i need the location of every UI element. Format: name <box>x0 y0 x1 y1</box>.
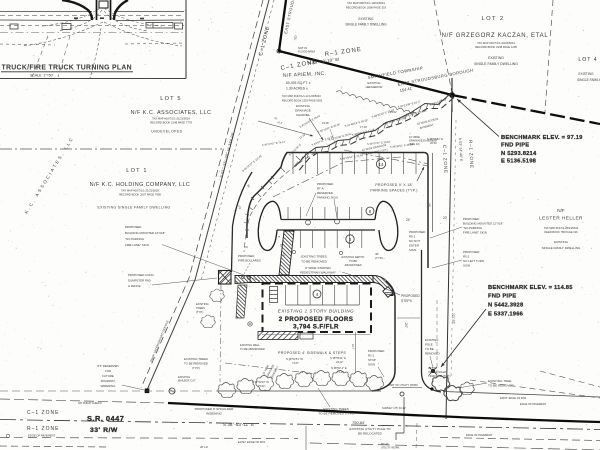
svg-text:154.41': 154.41' <box>399 86 413 93</box>
svg-text:TRUCK/FIRE TRUCK TURNING PLAN: TRUCK/FIRE TRUCK TURNING PLAN <box>2 65 132 72</box>
svg-text:LOT 5: LOT 5 <box>160 96 181 102</box>
svg-text:R–1 ZONE: R–1 ZONE <box>27 426 59 432</box>
svg-text:TAX MAP #16/7/1/1-20/24/5041: TAX MAP #16/7/1/1-20/24/5041 <box>477 41 515 45</box>
svg-text:FUTURE: FUTURE <box>102 374 114 378</box>
svg-text:EXISTING: EXISTING <box>196 302 209 306</box>
svg-text:TAX MAP #06/7/1/1-10/01/5041: TAX MAP #06/7/1/1-10/01/5041 <box>347 1 385 5</box>
svg-text:N 5293.8214: N 5293.8214 <box>501 151 537 157</box>
svg-text:EXISTING: EXISTING <box>554 240 569 244</box>
svg-text:MAILBOX CUT: MAILBOX CUT <box>178 379 196 383</box>
svg-text:C–1 ZONE: C–1 ZONE <box>442 145 449 174</box>
svg-text:CHANNEL: CHANNEL <box>296 113 311 117</box>
svg-text:DO NOT: DO NOT <box>409 239 420 243</box>
svg-text:TO BE: TO BE <box>349 259 357 263</box>
svg-text:41.2': 41.2' <box>277 120 284 125</box>
svg-text:REMOVED: REMOVED <box>425 352 440 356</box>
svg-text:C–1 ZONE: C–1 ZONE <box>27 410 59 416</box>
svg-text:TO BE REMOVED: TO BE REMOVED <box>184 362 208 366</box>
svg-text:HEDGEROW: HEDGEROW <box>366 85 383 89</box>
svg-text:PARKING SPACES (TYP.): PARKING SPACES (TYP.) <box>370 189 417 193</box>
svg-text:R5-2: R5-2 <box>463 255 470 259</box>
svg-text:BENCHMARK ELEV. = 114.85: BENCHMARK ELEV. = 114.85 <box>488 285 573 291</box>
svg-text:TO BE REMOVED (TYP.): TO BE REMOVED (TYP.) <box>318 412 353 416</box>
svg-text:BE RELOCATED: BE RELOCATED <box>358 432 382 436</box>
svg-text:1.30 ACRES ±: 1.30 ACRES ± <box>286 87 308 91</box>
svg-text:S 53°14'46" E: S 53°14'46" E <box>429 98 446 107</box>
svg-text:DUMPSTER PAD: DUMPSTER PAD <box>128 279 151 283</box>
svg-text:DEED BOOK 765 PAGE 316: DEED BOOK 765 PAGE 316 <box>544 230 578 234</box>
svg-text:RT-A: RT-A <box>317 187 324 191</box>
svg-text:20': 20' <box>443 216 448 220</box>
svg-text:S 38°-53'-11" E: S 38°-53'-11" E <box>223 422 254 427</box>
svg-text:DRAINAGE: DRAINAGE <box>295 109 311 113</box>
svg-text:ABANDONED: ABANDONED <box>343 263 361 267</box>
svg-text:TREES: TREES <box>196 306 205 310</box>
svg-text:PROP. UNDERGROUND SERVICE: PROP. UNDERGROUND SERVICE <box>149 319 169 362</box>
svg-text:EXISTING WELL: EXISTING WELL <box>240 343 260 347</box>
svg-text:EXISTING: EXISTING <box>296 104 311 108</box>
svg-text:MT 49: MT 49 <box>381 442 389 446</box>
svg-text:UNDEVELOPED: UNDEVELOPED <box>151 130 182 134</box>
svg-text:N/F APIEM, INC.: N/F APIEM, INC. <box>283 71 327 79</box>
svg-text:25': 25' <box>427 203 431 208</box>
svg-text:LOT 1: LOT 1 <box>126 168 147 174</box>
svg-text:PROPOSED: PROPOSED <box>401 294 420 298</box>
svg-text:STEPS: STEPS <box>401 299 413 303</box>
svg-text:SIGN: SIGN <box>368 363 375 367</box>
svg-text:SD.: SD. <box>293 34 298 40</box>
svg-text:(TYP.): (TYP.) <box>196 310 204 314</box>
svg-text:SIGN: SIGN <box>463 264 470 268</box>
svg-text:ROADWAY: ROADWAY <box>101 379 116 383</box>
svg-text:LIMIT OF UTILITY WORK: LIMIT OF UTILITY WORK <box>388 383 418 387</box>
svg-text:R–1 ZONE: R–1 ZONE <box>468 140 475 169</box>
svg-text:N/F PHILIP CHIEKO: N/F PHILIP CHIEKO <box>78 401 102 405</box>
svg-text:EDGE OF PAVEMENT: EDGE OF PAVEMENT <box>466 433 493 437</box>
svg-text:EXISTING TREES: EXISTING TREES <box>323 407 349 411</box>
svg-text:C–1 ZONE: C–1 ZONE <box>258 26 271 57</box>
svg-text:16.7': 16.7' <box>351 344 355 350</box>
svg-text:(TYP.): (TYP.) <box>375 256 383 260</box>
svg-text:UTILITY WORK: UTILITY WORK <box>381 446 400 450</box>
svg-text:23.12': 23.12' <box>336 360 343 364</box>
svg-text:SIGN: SIGN <box>409 248 416 252</box>
svg-text:SCALE: 1"=50': SCALE: 1"=50' <box>30 74 54 78</box>
svg-text:23.46': 23.46' <box>322 121 329 125</box>
svg-text:EXISTING TREE: EXISTING TREE <box>488 379 512 383</box>
svg-text:4: 4 <box>316 292 319 297</box>
svg-text:8' WIDE STRIPED: 8' WIDE STRIPED <box>305 266 331 270</box>
svg-text:E 5136.5198: E 5136.5198 <box>501 159 537 165</box>
svg-text:S 40°11'26" E: S 40°11'26" E <box>288 143 302 157</box>
svg-text:10' WIDE: 10' WIDE <box>409 135 420 139</box>
svg-text:EDGE OF PAVEMENT: EDGE OF PAVEMENT <box>28 434 56 438</box>
svg-text:TAX MAP #16/7/1-25/24/5341: TAX MAP #16/7/1-25/24/5341 <box>544 226 579 230</box>
svg-text:SURVEY 175' 94.19': SURVEY 175' 94.19' <box>382 406 406 410</box>
svg-text:S 38°53'11" E: S 38°53'11" E <box>330 356 346 360</box>
svg-text:FND PIPE: FND PIPE <box>501 143 529 149</box>
svg-text:BUILDING MOUNTED 12"X18": BUILDING MOUNTED 12"X18" <box>125 231 165 235</box>
svg-text:BUILDING MOUNTED 12"X18": BUILDING MOUNTED 12"X18" <box>463 222 503 226</box>
svg-text:PROPOSED: PROPOSED <box>238 254 254 258</box>
svg-text:DRAINAGE EASEMENT: DRAINAGE EASEMENT <box>409 139 438 143</box>
svg-text:TO BE ABANDONED: TO BE ABANDONED <box>240 347 265 351</box>
svg-text:PROPOSED: PROPOSED <box>368 349 384 353</box>
svg-text:RECORD BOOK 2302 PAGE 9292: RECORD BOOK 2302 PAGE 9292 <box>282 99 323 103</box>
svg-text:TAX MAP #16/7/1/1-21/21/5024: TAX MAP #16/7/1/1-21/21/5024 <box>152 117 190 121</box>
svg-text:SINGLE FAMILY DWELLING: SINGLE FAMILY DWELLING <box>345 23 387 27</box>
svg-text:N/F GRZEGORZ KACZAN, ETAL: N/F GRZEGORZ KACZAN, ETAL <box>442 33 549 39</box>
svg-text:N 38°53'-1" E: N 38°53'-1" E <box>331 366 347 370</box>
svg-text:FIRE LANE" SIGN: FIRE LANE" SIGN <box>463 231 487 235</box>
svg-text:70': 70' <box>274 116 279 121</box>
svg-text:N 37°52'07" W: N 37°52'07" W <box>252 380 269 384</box>
svg-text:3: 3 <box>349 237 352 242</box>
svg-text:RECORD BOOK 2148 PAGE 7779: RECORD BOOK 2148 PAGE 7779 <box>150 121 192 125</box>
svg-text:S 38°56'51" E 36.54': S 38°56'51" E 36.54' <box>390 142 415 149</box>
svg-text:8: 8 <box>369 209 372 214</box>
svg-text:RECORD BOOK 2067 PAGE 7999: RECORD BOOK 2067 PAGE 7999 <box>119 193 161 197</box>
svg-text:N/F: N/F <box>557 208 565 213</box>
svg-text:EXISTING: EXISTING <box>178 375 190 379</box>
svg-text:74.67': 74.67' <box>292 361 299 365</box>
svg-text:PROPOSED: PROPOSED <box>409 230 425 234</box>
svg-text:24': 24' <box>406 218 411 222</box>
svg-text:PROPOSED: PROPOSED <box>463 250 479 254</box>
svg-text:LOT 4: LOT 4 <box>578 57 597 63</box>
svg-text:EXISTING TREES: EXISTING TREES <box>301 255 327 259</box>
svg-text:S.R. 0447: S.R. 0447 <box>87 414 124 423</box>
svg-text:FND PIPE: FND PIPE <box>488 294 516 300</box>
svg-text:N 53°-14'-46" E: N 53°-14'-46" E <box>458 138 463 162</box>
svg-text:PROPOSED 8' SHOULDER: PROPOSED 8' SHOULDER <box>195 407 235 411</box>
svg-text:EXISTING UTILITY POLE TO: EXISTING UTILITY POLE TO <box>350 427 392 431</box>
svg-text:WIDENING: WIDENING <box>206 412 222 416</box>
svg-text:40' LD: 40' LD <box>200 445 208 449</box>
svg-text:RECORD BOOK 2096 PAGE 319: RECORD BOOK 2096 PAGE 319 <box>346 6 387 10</box>
svg-text:170': 170' <box>237 204 242 210</box>
svg-text:SINGLE FAMILY DWELLING: SINGLE FAMILY DWELLING <box>542 246 581 250</box>
svg-text:ENTER: ENTER <box>409 244 419 248</box>
svg-text:8.5' RESERVED: 8.5' RESERVED <box>97 364 118 368</box>
svg-text:60,493 SQ.FT. ±: 60,493 SQ.FT. ± <box>286 81 311 85</box>
svg-text:TO BE REMOVED: TO BE REMOVED <box>301 260 327 264</box>
svg-text:PROPOSED CONC.: PROPOSED CONC. <box>128 273 155 277</box>
svg-text:TAX MAP #16/7/1/1-13 1/20/5024: TAX MAP #16/7/1/1-13 1/20/5024 <box>282 94 321 98</box>
svg-text:STOP: STOP <box>368 358 376 362</box>
svg-text:POLE: POLE <box>425 343 433 347</box>
svg-text:3,794 S.F/FLR: 3,794 S.F/FLR <box>293 324 339 331</box>
svg-text:NO LEFT TURN: NO LEFT TURN <box>463 259 484 263</box>
svg-text:& FENCE: & FENCE <box>128 284 141 288</box>
svg-text:PROPOSED: PROPOSED <box>317 182 333 186</box>
svg-text:S 46°07'07" E 74.67': S 46°07'07" E 74.67' <box>262 140 287 147</box>
svg-text:PROPOSED 9' X 18': PROPOSED 9' X 18' <box>375 183 412 187</box>
svg-text:S 46°07'07" E 113.48': S 46°07'07" E 113.48' <box>241 153 263 172</box>
svg-text:PARKING SIGN: PARKING SIGN <box>317 196 338 200</box>
svg-text:S 46°55'40" E 22.88': S 46°55'40" E 22.88' <box>382 115 406 126</box>
svg-text:N/F K.C. HOLDING COMPANY, LLC: N/F K.C. HOLDING COMPANY, LLC <box>90 182 191 188</box>
svg-text:PROPOSED: PROPOSED <box>463 217 479 221</box>
svg-text:2 PROPOSED FLOORS: 2 PROPOSED FLOORS <box>279 316 354 323</box>
svg-text:FLOOD AREA: FLOOD AREA <box>298 50 315 54</box>
svg-text:95': 95' <box>246 184 251 189</box>
svg-text:FIRE LANE" SIGN: FIRE LANE" SIGN <box>125 243 149 247</box>
svg-text:C–1 ZONE: C–1 ZONE <box>280 59 318 72</box>
svg-text:E 5337.1966: E 5337.1966 <box>488 312 524 318</box>
svg-text:EDGE OF PAVEMENT: EDGE OF PAVEMENT <box>520 402 547 406</box>
svg-text:24': 24' <box>404 323 408 328</box>
svg-text:17.10': 17.10' <box>360 125 367 129</box>
svg-text:LESTER HELLER: LESTER HELLER <box>539 216 583 222</box>
svg-text:14: 14 <box>379 162 384 167</box>
svg-text:N 5442.3928: N 5442.3928 <box>488 303 524 309</box>
svg-text:750.84': 750.84' <box>352 420 365 425</box>
svg-text:EXISTING 1 STORY BUILDING: EXISTING 1 STORY BUILDING <box>278 309 354 314</box>
svg-text:277.97': 277.97' <box>451 313 456 325</box>
svg-text:TAX MAP #16/7/1/1-21/21/5020: TAX MAP #16/7/1/1-21/21/5020 <box>121 189 159 193</box>
svg-text:EXISTING: EXISTING <box>579 72 594 76</box>
svg-text:"NO PARKING: "NO PARKING <box>463 226 483 230</box>
svg-text:SINGLE FAMILY DWELLING: SINGLE FAMILY DWELLING <box>474 62 518 66</box>
svg-text:WIDENING: WIDENING <box>101 384 117 388</box>
svg-text:PROPOSED 4' SIDEWALK & STE: PROPOSED 4' SIDEWALK & STEPS <box>278 351 346 355</box>
svg-text:S 46°19'57" E 23.46': S 46°19'57" E 23.46' <box>317 122 341 134</box>
svg-text:EXISTING SINGLE FAMILY DWELLIN: EXISTING SINGLE FAMILY DWELLING <box>98 206 171 210</box>
svg-text:EXIST. EDGE OF R/W: EXIST. EDGE OF R/W <box>500 396 527 400</box>
svg-text:FOR: FOR <box>105 369 111 373</box>
svg-text:EXIST. EDGE OF R/W: EXIST. EDGE OF R/W <box>238 440 265 444</box>
svg-text:NOT IN: NOT IN <box>298 46 307 50</box>
svg-text:PROPOSED: PROPOSED <box>125 225 141 229</box>
svg-text:R5-1: R5-1 <box>409 235 416 239</box>
svg-text:BENCHMARK ELEV. = 97.19: BENCHMARK ELEV. = 97.19 <box>501 135 583 141</box>
svg-text:EXISTING: EXISTING <box>488 56 504 60</box>
svg-text:RESERVED: RESERVED <box>317 191 333 195</box>
svg-text:K.C. ASSOCIATES, LLC: K.C. ASSOCIATES, LLC <box>24 135 75 214</box>
svg-text:PIPE BOLLARDS: PIPE BOLLARDS <box>238 259 261 263</box>
svg-text:EXISTING TREES: EXISTING TREES <box>184 357 208 361</box>
svg-text:R1-1: R1-1 <box>368 354 375 358</box>
svg-text:LOT 2: LOT 2 <box>481 16 504 22</box>
svg-text:(TYP.): (TYP.) <box>192 366 200 370</box>
svg-text:TO BE: TO BE <box>425 347 434 351</box>
svg-text:25.02': 25.02' <box>390 110 397 114</box>
svg-text:N/F K.C. ASSOCIATES, LLC: N/F K.C. ASSOCIATES, LLC <box>131 110 212 116</box>
svg-text:S 49°28'51" E 21.64': S 49°28'51" E 21.64' <box>339 153 364 161</box>
svg-text:RECORD BOOK 2248 PAGE 1205: RECORD BOOK 2248 PAGE 1205 <box>475 45 517 49</box>
svg-text:EXISTING: EXISTING <box>359 17 374 21</box>
svg-text:8': 8' <box>277 235 281 238</box>
svg-text:N 38°52'51" W: N 38°52'51" W <box>286 357 303 361</box>
svg-text:"NO PARKING: "NO PARKING <box>125 237 145 241</box>
